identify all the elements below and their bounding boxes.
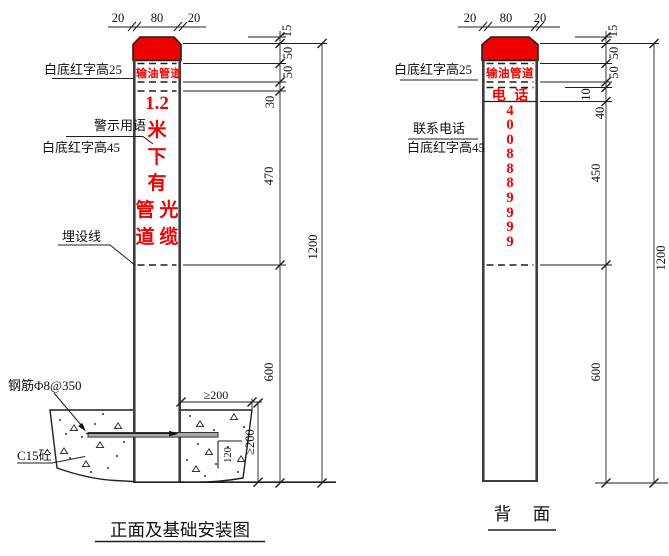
rotated-dim-labels: 15 50 50 30 470 600 1200 ≥200 120 15 50 … [223, 25, 668, 463]
front-top-dim-20-right: 20 [182, 11, 206, 26]
back-band-text: 输油管道 [485, 65, 535, 81]
back-phone-label: 电 话 [485, 85, 535, 105]
back-dim-600: 600 [589, 363, 603, 382]
front-dim-15: 15 [280, 25, 294, 38]
back-dim-1200: 1200 [654, 246, 668, 271]
back-top-dim-20-left: 20 [458, 11, 482, 26]
front-top-dim-80: 80 [145, 11, 169, 26]
front-foundation-texture [59, 413, 245, 477]
back-post-red-cap [482, 37, 538, 61]
front-burial-line-label: 埋设线 [62, 230, 101, 244]
back-phone-note-2: 白底红字高45 [407, 141, 485, 155]
front-post-red-cap [133, 37, 181, 61]
front-warning-note-2: 白底红字高45 [42, 141, 120, 155]
front-dim-30: 30 [263, 96, 277, 109]
front-band-text: 输油管道 [136, 65, 178, 81]
front-warning-note-1: 警示用语 [94, 119, 146, 133]
front-dim-1200: 1200 [306, 235, 320, 260]
front-warning-text: 1.2 米 下 有 管 光 道 缆 [133, 91, 181, 252]
front-dim-120: 120 [223, 447, 234, 463]
front-dim-470: 470 [262, 167, 276, 186]
front-dim-600: 600 [262, 363, 276, 382]
front-view-title: 正面及基础安装图 [93, 517, 267, 542]
front-concrete-label: C15砼 [17, 449, 52, 463]
back-dim-50b: 50 [607, 66, 621, 79]
back-dim-40: 40 [593, 107, 607, 120]
front-top-dim-20-left: 20 [106, 11, 130, 26]
back-dim-15: 15 [606, 25, 620, 38]
back-dim-50a: 50 [607, 47, 621, 60]
front-extension-lines [183, 37, 327, 265]
front-band-note-label: 白底红字高25 [44, 63, 122, 77]
back-dim-450: 450 [589, 164, 603, 183]
front-dim-ge200-v: ≥200 [243, 429, 257, 455]
back-band-note-label: 白底红字高25 [394, 63, 472, 77]
back-dim-10: 10 [579, 88, 593, 101]
front-dim-50a: 50 [281, 47, 295, 60]
back-dimension-chain [602, 31, 659, 488]
concrete-dots [59, 413, 245, 477]
front-dim-ge200-h: ≥200 [186, 388, 246, 403]
back-top-dim-20-right: 20 [528, 11, 552, 26]
front-dim-50b: 50 [281, 66, 295, 79]
back-phone-note-1: 联系电话 [413, 122, 465, 136]
drawing-linework: 15 50 50 30 470 600 1200 ≥200 120 15 50 … [0, 0, 669, 556]
drawing-canvas: 15 50 50 30 470 600 1200 ≥200 120 15 50 … [0, 0, 669, 556]
back-view-title: 背 面 [487, 501, 559, 526]
back-dim-ticks [602, 33, 659, 488]
front-rebar-label: 钢筋Φ8@350 [8, 379, 81, 393]
back-phone-digits: 4 0 0 8 8 8 9 9 9 9 [485, 104, 535, 250]
back-top-dim-80: 80 [494, 11, 518, 26]
